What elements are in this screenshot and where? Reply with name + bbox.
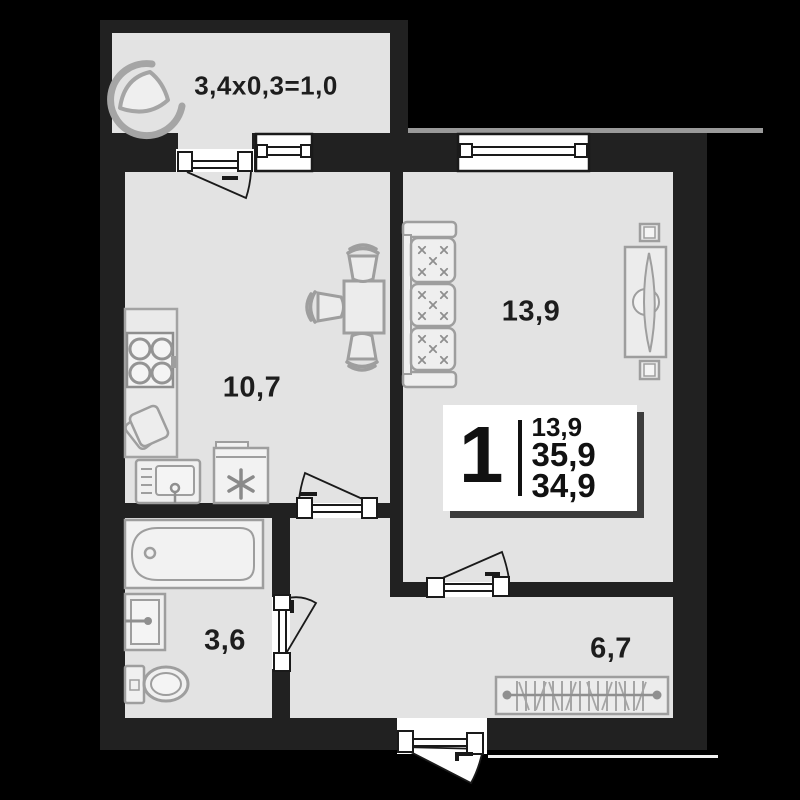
bathtub-icon (125, 520, 263, 588)
floor-plan: 3,4x0,3=1,0 10,7 13,9 3,6 6,7 1 13,9 35,… (0, 0, 800, 800)
entrance-door-icon (397, 718, 487, 783)
total-area-value: 35,9 (532, 439, 596, 470)
toilet-icon (125, 666, 188, 703)
balcony-door-icon (176, 149, 254, 198)
fridge-icon (214, 442, 268, 503)
kitchen-sink-icon (136, 460, 200, 503)
bathroom-door-icon (272, 595, 316, 671)
apartment-info-card: 1 13,9 35,9 34,9 (443, 405, 637, 511)
living-room-window-icon (458, 134, 589, 171)
coat-rack-icon (496, 677, 668, 714)
sofa-icon (403, 222, 456, 387)
tv-unit-icon (625, 224, 666, 379)
chair-icon (347, 334, 377, 371)
chair-icon (307, 292, 344, 322)
dining-table (344, 281, 384, 333)
kitchen-window-icon (256, 134, 312, 171)
washbasin-icon (125, 594, 165, 650)
room-count: 1 (459, 415, 504, 495)
bathroom-area-label: 3,6 (204, 625, 246, 658)
info-card-divider (518, 420, 522, 496)
balcony-planter-icon (111, 64, 182, 136)
kitchen-door-icon (297, 473, 377, 518)
living-room-area-label: 13,9 (502, 296, 560, 329)
reduced-area-value: 34,9 (532, 470, 596, 501)
kitchen-area-label: 10,7 (223, 372, 281, 405)
hallway-area-label: 6,7 (590, 633, 632, 666)
stove-icon (127, 333, 176, 387)
living-room-door-icon (427, 552, 510, 597)
plan-symbols (0, 0, 800, 800)
balcony-area-label: 3,4x0,3=1,0 (194, 71, 338, 102)
info-card-areas: 13,9 35,9 34,9 (532, 415, 596, 501)
chair-icon (348, 245, 378, 282)
